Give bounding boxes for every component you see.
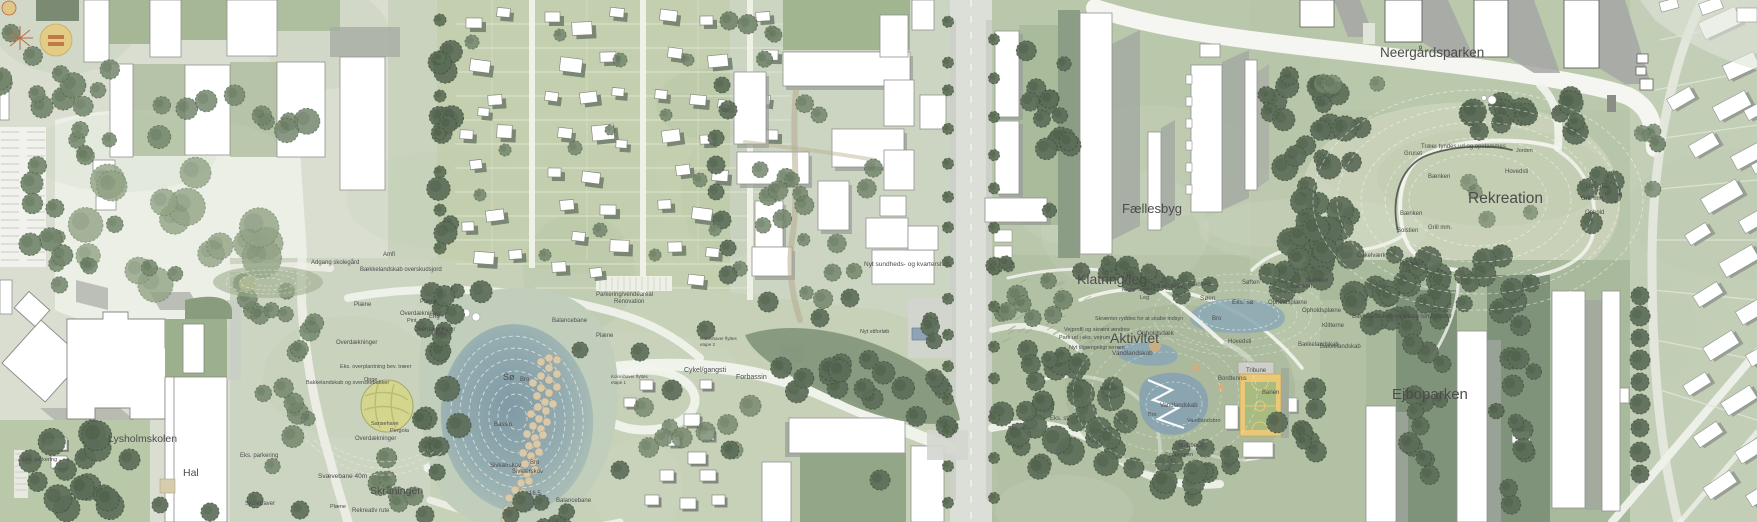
svg-text:Plæne: Plæne <box>420 299 438 305</box>
svg-text:Soppesøen: Soppesøen <box>1165 452 1193 458</box>
svg-text:Banen: Banen <box>1262 390 1279 396</box>
svg-text:Søften: Søften <box>1242 280 1260 286</box>
svg-text:Rekreation: Rekreation <box>1468 190 1543 207</box>
svg-text:Cirkelværk: Cirkelværk <box>1357 253 1387 259</box>
svg-text:Vejprofil og skrænt ændres: Vejprofil og skrænt ændres <box>1064 327 1130 333</box>
svg-text:Opholdsdæk: Opholdsdæk <box>1137 330 1175 337</box>
svg-text:Overdækninger: Overdækninger <box>336 340 377 346</box>
svg-text:Eks. overplantning bev. træer: Eks. overplantning bev. træer <box>340 364 412 370</box>
svg-text:Hovedsti: Hovedsti <box>1505 169 1528 175</box>
svg-text:Balancebane: Balancebane <box>556 498 592 504</box>
svg-text:Balancebane: Balancebane <box>552 318 588 324</box>
svg-text:Træer tyndes ud og opstammes: Træer tyndes ud og opstammes <box>1421 144 1506 150</box>
svg-text:Hovedsti: Hovedsti <box>1228 339 1251 345</box>
svg-text:Ophold: Ophold <box>1585 210 1604 216</box>
svg-text:Eks. sti: Eks. sti <box>1050 416 1069 422</box>
svg-text:Sivkærskov: Sivkærskov <box>512 469 543 475</box>
svg-text:Vandlandskab: Vandlandskab <box>1112 350 1153 357</box>
svg-text:Adgang skolegård: Adgang skolegård <box>311 259 359 266</box>
svg-text:Bro: Bro <box>1148 412 1157 418</box>
svg-text:Bænken: Bænken <box>1188 282 1210 288</box>
svg-text:Tribune: Tribune <box>1246 368 1267 374</box>
svg-text:Nyt stiforløb: Nyt stiforløb <box>860 329 889 335</box>
svg-text:Fællesbyg: Fællesbyg <box>1122 201 1182 216</box>
svg-text:Hovedsti: Hovedsti <box>1400 261 1423 267</box>
svg-text:Eng: Eng <box>429 314 440 320</box>
svg-text:Leg: Leg <box>1140 295 1149 301</box>
svg-text:Bassin: Bassin <box>494 422 512 428</box>
svg-text:Skrænter ryddes for at skabe i: Skrænter ryddes for at skabe indsyn <box>1095 316 1183 322</box>
svg-text:Gruset: Gruset <box>1404 151 1422 157</box>
svg-text:Overdækninger: Overdækninger <box>355 436 396 442</box>
svg-text:Eng: Eng <box>436 331 447 337</box>
svg-text:Bænken: Bænken <box>1428 174 1450 180</box>
svg-text:Forbassin: Forbassin <box>736 374 767 381</box>
svg-text:Hal: Hal <box>183 467 199 479</box>
svg-text:Udsigten: Udsigten <box>1586 184 1610 190</box>
svg-text:Eks. parkering: Eks. parkering <box>240 453 278 459</box>
svg-text:etape 1: etape 1 <box>611 380 627 385</box>
svg-text:Klitterne: Klitterne <box>1322 323 1345 329</box>
svg-text:Stubbesti: Stubbesti <box>1178 443 1203 449</box>
svg-text:Nyt tilgængeligt terræn: Nyt tilgængeligt terræn <box>1069 345 1125 351</box>
svg-text:Overdækninger: Overdækninger <box>414 327 455 333</box>
svg-text:Svævebane 40m: Svævebane 40m <box>318 473 367 480</box>
svg-text:Bækkelandskab overskudsjord: Bækkelandskab overskudsjord <box>360 267 442 273</box>
svg-text:Bro: Bro <box>520 377 530 383</box>
svg-text:Klatreskoven: Klatreskoven <box>1122 287 1154 293</box>
svg-text:Eks. sø: Eks. sø <box>1232 299 1254 306</box>
svg-text:Ejboparken: Ejboparken <box>1392 386 1468 403</box>
svg-text:Solstien: Solstien <box>1397 228 1418 234</box>
svg-text:Lysholmskolen: Lysholmskolen <box>108 433 177 445</box>
svg-text:Plæne: Plæne <box>596 333 614 339</box>
svg-text:Pergola: Pergola <box>390 428 410 434</box>
svg-text:Sø: Sø <box>503 372 515 382</box>
svg-text:Bro: Bro <box>1212 316 1222 322</box>
svg-text:Bænken: Bænken <box>1400 211 1422 217</box>
svg-text:Parkering/vendeareal: Parkering/vendeareal <box>596 292 653 298</box>
svg-text:Kolonihaver flyttes: Kolonihaver flyttes <box>700 336 738 341</box>
svg-text:Pint: Pint <box>407 318 417 324</box>
svg-text:Eks. sti: Eks. sti <box>1100 386 1118 392</box>
svg-text:Klatring/leg: Klatring/leg <box>1077 271 1147 287</box>
svg-text:Nyt sundheds- og kvartershus: Nyt sundheds- og kvartershus <box>864 261 951 268</box>
svg-text:Neergårdsparken: Neergårdsparken <box>1380 45 1484 60</box>
svg-text:Sansehave: Sansehave <box>371 421 399 427</box>
svg-text:Skolehaver: Skolehaver <box>245 501 275 507</box>
svg-text:etape 2: etape 2 <box>700 342 716 347</box>
svg-text:Bakkelandskab: Bakkelandskab <box>1298 342 1339 348</box>
svg-text:Plæne: Plæne <box>354 302 372 308</box>
svg-text:-16,5: -16,5 <box>527 491 541 497</box>
svg-text:Amfi: Amfi <box>383 252 395 258</box>
svg-text:Bakkelandskab og intime rumlig: Bakkelandskab og intime rumligheder <box>1352 314 1452 320</box>
svg-text:Opholdsplæne: Opholdsplæne <box>1268 300 1308 306</box>
svg-text:Grill mm.: Grill mm. <box>1581 196 1605 202</box>
svg-text:Vandlandsbro: Vandlandsbro <box>1187 418 1221 424</box>
svg-text:Jorden: Jorden <box>1516 148 1533 154</box>
svg-text:Opholdsplæne: Opholdsplæne <box>1302 308 1342 314</box>
svg-text:Rekreativ rute: Rekreativ rute <box>352 508 390 514</box>
svg-text:Skråningen: Skråningen <box>370 485 423 497</box>
svg-text:Søen: Søen <box>1200 295 1216 302</box>
svg-text:Bænken: Bænken <box>1290 284 1312 290</box>
svg-text:Kolonihaver flyttes: Kolonihaver flyttes <box>611 374 649 379</box>
svg-text:Bordtennis: Bordtennis <box>1218 376 1247 382</box>
svg-text:Rutsjebanen: Rutsjebanen <box>1151 284 1185 290</box>
svg-text:Eks. sti: Eks. sti <box>1008 426 1026 432</box>
svg-text:Grill mm.: Grill mm. <box>1428 225 1452 231</box>
svg-text:Bro: Bro <box>530 460 540 466</box>
svg-text:Vandlandskab: Vandlandskab <box>1160 403 1198 409</box>
svg-text:Renovation: Renovation <box>614 299 644 305</box>
svg-text:Plæne: Plæne <box>330 504 346 510</box>
svg-text:Park ud i eks. vejrum: Park ud i eks. vejrum <box>1059 335 1111 341</box>
svg-text:Eks. parkering: Eks. parkering <box>22 457 57 463</box>
svg-text:Oppe: Oppe <box>364 377 377 383</box>
svg-text:Cykel/gangsti: Cykel/gangsti <box>684 367 726 374</box>
